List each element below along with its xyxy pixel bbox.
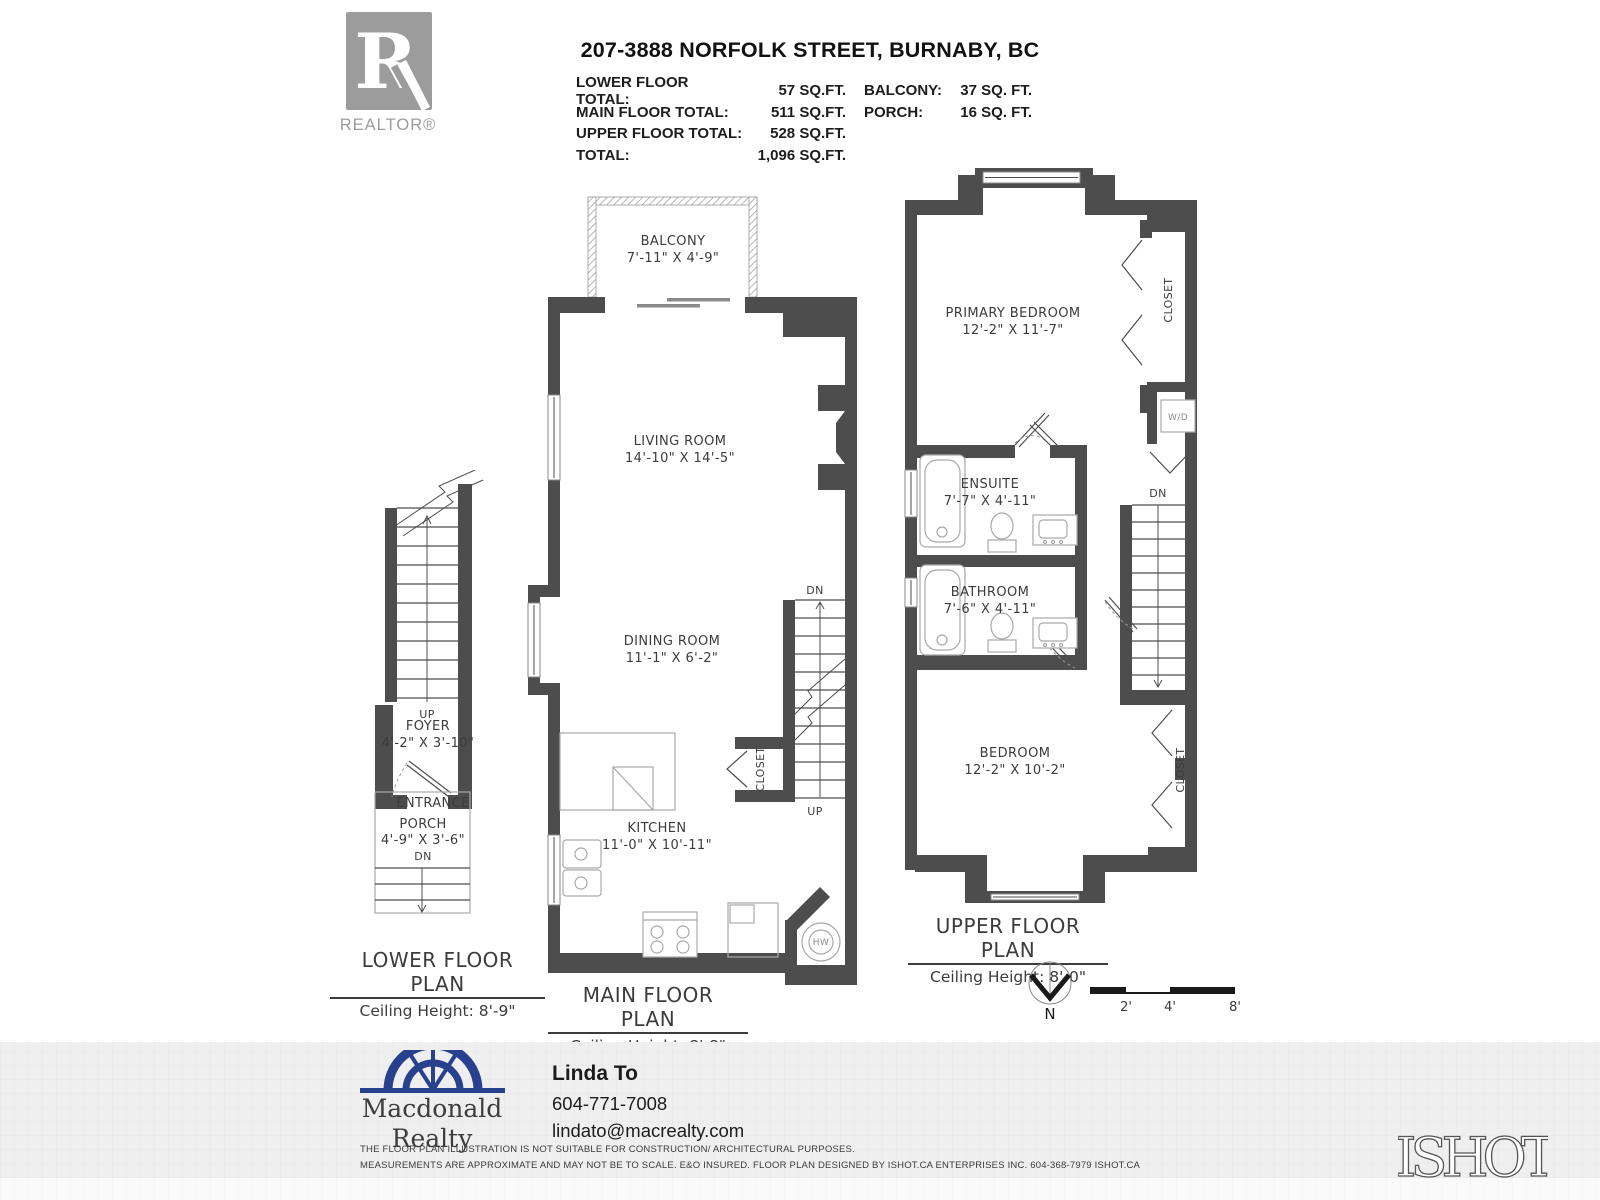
area-label: MAIN FLOOR TOTAL: <box>576 104 746 121</box>
lower-plan-title: LOWER FLOOR PLAN Ceiling Height: 8'-9" <box>330 948 545 1020</box>
page-title: 207-3888 NORFOLK STREET, BURNABY, BC <box>540 38 1080 63</box>
primary-bedroom-label: PRIMARY BEDROOM <box>946 306 1081 321</box>
stairs-dn-label: DN <box>806 584 824 597</box>
stairs-up-label: UP <box>807 805 823 818</box>
porch-label: PORCH <box>399 817 446 832</box>
area-row: UPPER FLOOR TOTAL: 528 SQ.FT. <box>576 123 1032 145</box>
brand-name-line1: Macdonald <box>352 1094 512 1123</box>
kitchen-cabinet <box>728 903 778 957</box>
area-value: 16 SQ. FT. <box>954 104 1032 121</box>
floor-plan-sheet: R REALTOR® 207-3888 NORFOLK STREET, BURN… <box>0 0 1600 1200</box>
footer-band-bottom <box>0 1178 1600 1200</box>
kitchen-label: KITCHEN <box>627 821 686 836</box>
realtor-wordmark: REALTOR® <box>338 116 438 135</box>
living-room-label: LIVING ROOM <box>634 434 727 449</box>
closet-label: CLOSET <box>1162 277 1175 322</box>
bedroom-dims: 12'-2" X 10'-2" <box>964 763 1065 778</box>
dining-room-dims: 11'-1" X 6'-2" <box>626 651 719 666</box>
balcony-dims: 7'-11" X 4'-9" <box>627 251 720 266</box>
sliding-door <box>667 298 730 302</box>
main-floor-labels: BALCONY 7'-11" X 4'-9" LIVING ROOM 14'-1… <box>602 234 829 948</box>
logo-baseline <box>360 1088 505 1093</box>
bedroom-label: BEDROOM <box>980 746 1051 761</box>
upper-floor-plan: PRIMARY BEDROOM 12'-2" X 11'-7" CLOSET W… <box>895 160 1205 905</box>
area-value: 511 SQ.FT. <box>746 104 846 121</box>
hw-label: HW <box>813 938 829 948</box>
kitchen-sink <box>563 840 601 868</box>
area-label: PORCH: <box>864 104 954 121</box>
lower-floor-plan: UP FOYER 4'-2" X 3'-10" ENTRANCE PORCH 4… <box>345 470 530 930</box>
agent-name: Linda To <box>552 1062 744 1086</box>
closet-label: CLOSET <box>754 746 767 791</box>
area-value: 1,096 SQ.FT. <box>746 147 846 164</box>
foyer-dims: 4'-2" X 3'-10" <box>382 736 475 751</box>
sliding-door <box>637 304 700 308</box>
scale-tick: 8' <box>1229 1000 1241 1015</box>
area-label: TOTAL: <box>576 147 746 164</box>
disclaimer-line2: MEASUREMENTS ARE APPROXIMATE AND MAY NOT… <box>360 1158 1340 1174</box>
realtor-logo: R <box>346 12 432 112</box>
ensuite-dims: 7'-7" X 4'-11" <box>944 494 1037 509</box>
lower-floor-walls <box>375 484 472 809</box>
closet-door <box>727 751 747 787</box>
area-label: BALCONY: <box>864 82 954 99</box>
ishot-wordmark: ISHOT <box>1398 1126 1548 1189</box>
foyer-label: FOYER <box>406 719 450 734</box>
stairs-dn-label: DN <box>1149 487 1167 500</box>
bathroom-label: BATHROOM <box>951 585 1029 600</box>
bathroom-dims: 7'-6" X 4'-11" <box>944 602 1037 617</box>
area-value: 57 SQ.FT. <box>746 82 846 99</box>
entrance-label: ENTRANCE <box>396 796 470 811</box>
disclaimer: THE FLOOR PLAN ILLUSTRATION IS NOT SUITA… <box>360 1142 1340 1174</box>
washer-dryer-label: W/D <box>1168 413 1188 423</box>
compass-north-label: N <box>1044 1005 1055 1023</box>
porch-dn-label: DN <box>414 850 432 863</box>
main-plan-title-text: MAIN FLOOR PLAN <box>548 983 748 1034</box>
balcony-label: BALCONY <box>641 234 706 249</box>
main-floor-plan: BALCONY 7'-11" X 4'-9" LIVING ROOM 14'-1… <box>520 185 865 1015</box>
north-compass: N <box>1015 953 1085 1025</box>
main-stairs <box>783 600 845 802</box>
scale-tick: 2' <box>1120 1000 1132 1015</box>
kitchen-dims: 11'-0" X 10'-11" <box>602 838 712 853</box>
upper-stairs <box>1132 505 1185 687</box>
agent-card: Linda To 604-771-7008 lindato@macrealty.… <box>552 1062 744 1142</box>
macdonald-realty-logo <box>360 1050 505 1096</box>
ensuite-label: ENSUITE <box>961 477 1020 492</box>
stair-break-line <box>788 685 845 747</box>
area-label: LOWER FLOOR TOTAL: <box>576 74 746 108</box>
area-value: 528 SQ.FT. <box>746 125 846 142</box>
ishot-logo: ISHOT <box>1398 1122 1548 1192</box>
area-value: 37 SQ. FT. <box>954 82 1032 99</box>
area-row: MAIN FLOOR TOTAL: 511 SQ.FT. PORCH: 16 S… <box>576 102 1032 124</box>
area-row: LOWER FLOOR TOTAL: 57 SQ.FT. BALCONY: 37… <box>576 80 1032 102</box>
lower-plan-ceiling: Ceiling Height: 8'-9" <box>330 1002 545 1020</box>
ensuite-toilet <box>991 513 1013 539</box>
living-room-dims: 14'-10" X 14'-5" <box>625 451 735 466</box>
scale-tick: 4' <box>1164 1000 1176 1015</box>
lower-plan-title-text: LOWER FLOOR PLAN <box>330 948 545 999</box>
porch-dims: 4'-9" X 3'-6" <box>381 833 465 848</box>
primary-bedroom-dims: 12'-2" X 11'-7" <box>962 323 1063 338</box>
dining-room-label: DINING ROOM <box>624 634 720 649</box>
closet-label: CLOSET <box>1174 747 1187 792</box>
disclaimer-line1: THE FLOOR PLAN ILLUSTRATION IS NOT SUITA… <box>360 1142 1340 1158</box>
agent-phone: 604-771-7008 <box>552 1093 744 1115</box>
upper-closet-doors <box>1122 240 1190 828</box>
area-label: UPPER FLOOR TOTAL: <box>576 125 746 142</box>
area-summary: LOWER FLOOR TOTAL: 57 SQ.FT. BALCONY: 37… <box>576 80 1032 166</box>
agent-email: lindato@macrealty.com <box>552 1120 744 1142</box>
scale-bar: 2' 4' 8' <box>1090 980 1250 1016</box>
